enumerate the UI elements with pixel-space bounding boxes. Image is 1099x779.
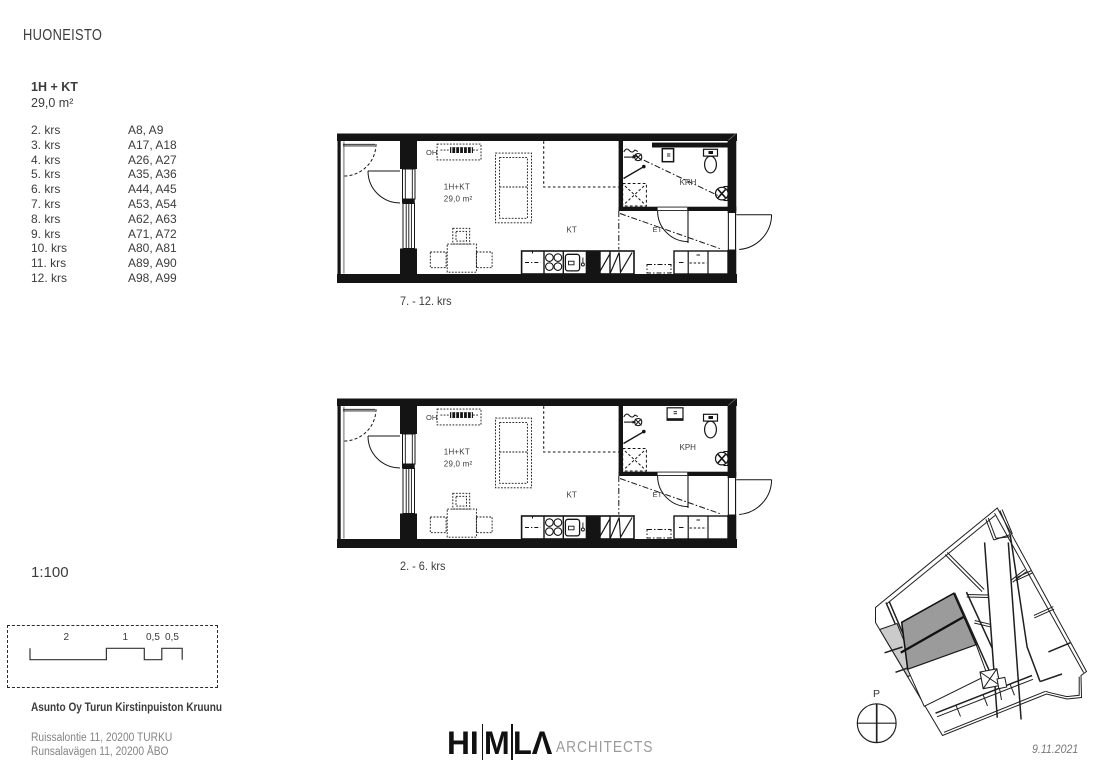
svg-text:OH: OH (426, 148, 437, 157)
svg-text:KT: KT (567, 226, 577, 235)
svg-text:KRH: KRH (680, 178, 697, 187)
svg-text:KT: KT (567, 491, 577, 500)
svg-text:ET: ET (653, 490, 663, 499)
svg-text:29,0 m²: 29,0 m² (444, 194, 473, 203)
svg-text:1H+KT: 1H+KT (444, 182, 470, 191)
svg-text:OH: OH (426, 413, 437, 422)
svg-text:KPH: KPH (680, 443, 697, 452)
svg-text:29,0 m²: 29,0 m² (444, 459, 473, 468)
svg-text:ET: ET (653, 225, 663, 234)
svg-text:1H+KT: 1H+KT (444, 447, 470, 456)
